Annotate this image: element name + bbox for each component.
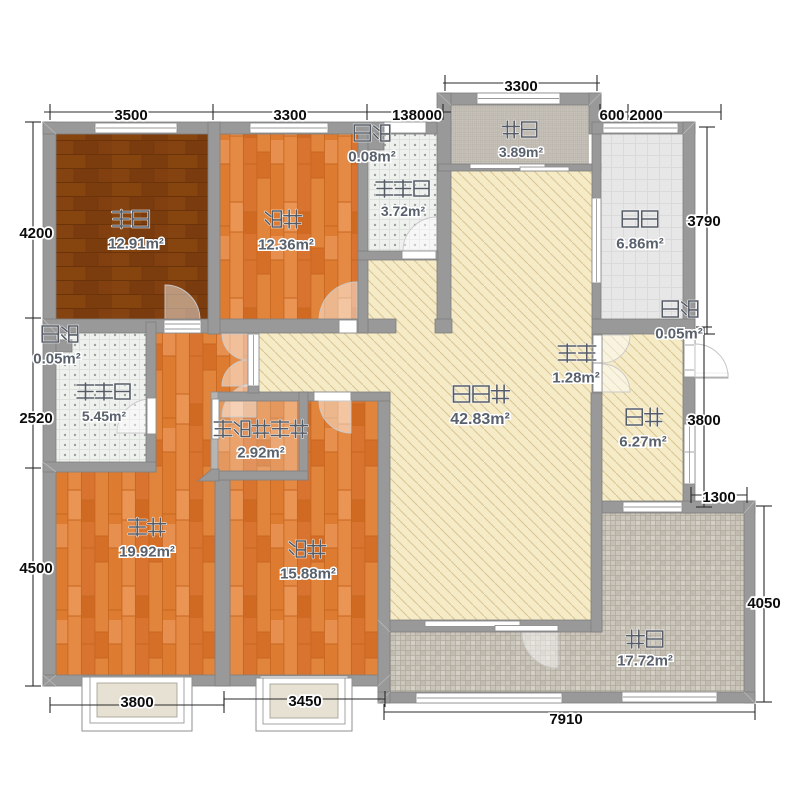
svg-text:3.89m²: 3.89m² xyxy=(499,144,544,160)
svg-text:6.27m²: 6.27m² xyxy=(619,433,667,450)
svg-text:4200: 4200 xyxy=(19,225,52,242)
svg-text:3500: 3500 xyxy=(114,107,147,124)
svg-text:12.91m²: 12.91m² xyxy=(108,235,164,252)
svg-text:12.36m²: 12.36m² xyxy=(258,236,314,253)
svg-text:1300: 1300 xyxy=(702,489,735,506)
svg-text:6.86m²: 6.86m² xyxy=(616,235,664,252)
svg-text:5.45m²: 5.45m² xyxy=(82,408,127,424)
svg-text:17.72m²: 17.72m² xyxy=(617,652,673,669)
svg-text:2520: 2520 xyxy=(19,410,52,427)
svg-text:3790: 3790 xyxy=(687,213,720,230)
svg-text:3800: 3800 xyxy=(120,694,153,711)
svg-text:2000: 2000 xyxy=(629,107,662,124)
svg-text:15.88m²: 15.88m² xyxy=(280,565,336,582)
svg-text:3300: 3300 xyxy=(273,107,306,124)
svg-text:0.05m²: 0.05m² xyxy=(33,350,81,367)
svg-text:0.05m²: 0.05m² xyxy=(655,325,703,342)
svg-text:1.28m²: 1.28m² xyxy=(552,369,600,386)
svg-text:3300: 3300 xyxy=(504,78,537,95)
svg-text:3.72m²: 3.72m² xyxy=(381,203,426,219)
svg-text:19.92m²: 19.92m² xyxy=(119,543,175,560)
svg-text:4500: 4500 xyxy=(19,560,52,577)
svg-text:3800: 3800 xyxy=(687,412,720,429)
svg-text:138000: 138000 xyxy=(392,107,442,124)
svg-text:600: 600 xyxy=(599,107,624,124)
svg-text:3450: 3450 xyxy=(288,693,321,710)
svg-text:0.08m²: 0.08m² xyxy=(348,148,396,165)
svg-text:7910: 7910 xyxy=(549,711,582,728)
svg-text:2.92m²: 2.92m² xyxy=(237,444,285,461)
svg-text:4050: 4050 xyxy=(747,595,780,612)
svg-text:42.83m²: 42.83m² xyxy=(450,411,510,428)
